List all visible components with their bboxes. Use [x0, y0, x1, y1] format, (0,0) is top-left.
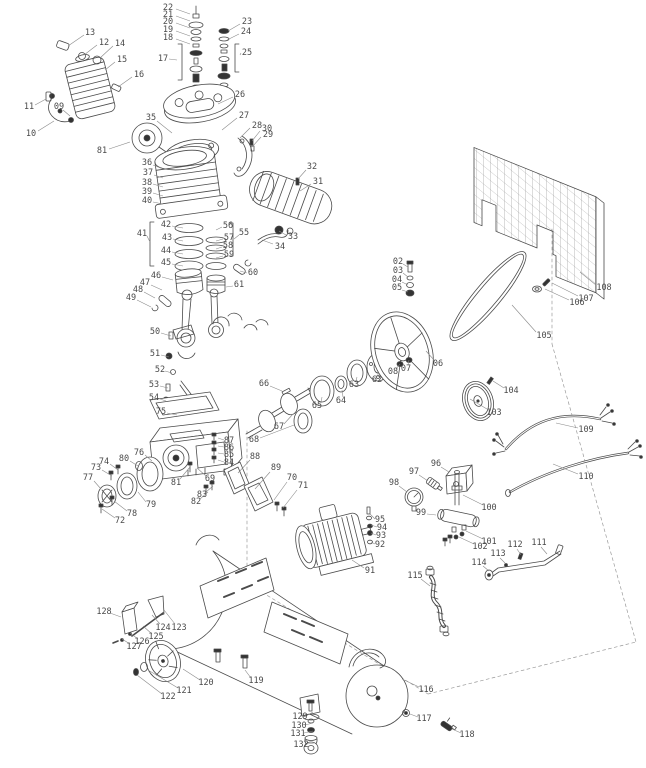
part-label-76: 76: [134, 449, 144, 458]
part-label-46: 46: [151, 272, 161, 281]
part-label-89: 89: [271, 464, 281, 473]
part-label-96: 96: [431, 460, 441, 469]
part-label-07: 07: [401, 365, 411, 374]
head-bracket: [234, 136, 254, 176]
part-label-120: 120: [198, 679, 213, 688]
part-label-71: 71: [298, 482, 308, 491]
part-label-88: 88: [250, 453, 260, 462]
connecting-rods: [177, 289, 268, 359]
part-label-111: 111: [531, 539, 546, 548]
parts-diagram: 2221201918172324252613121415161109108135…: [0, 0, 646, 768]
part-label-67: 67: [274, 423, 284, 432]
part-label-113: 113: [490, 550, 505, 559]
part-label-16: 16: [134, 71, 144, 80]
part-label-17: 17: [158, 55, 168, 64]
part-label-40: 40: [142, 197, 152, 206]
piston-2: [207, 275, 225, 294]
part-label-62: 62: [372, 376, 382, 385]
part-label-23: 23: [242, 18, 252, 27]
part-label-82: 82: [191, 498, 201, 507]
part-label-31: 31: [313, 178, 323, 187]
part-label-06: 06: [433, 360, 443, 369]
part-label-60: 60: [248, 269, 258, 278]
part-label-34: 34: [275, 243, 285, 252]
v-belt: [441, 244, 534, 348]
part-label-65: 65: [312, 402, 322, 411]
part-label-131: 131: [290, 730, 305, 739]
part-label-116: 116: [418, 686, 433, 695]
part-label-79: 79: [146, 501, 156, 510]
part-label-59: 59: [224, 251, 234, 260]
part-label-42: 42: [161, 221, 171, 230]
flywheel: [361, 304, 443, 401]
part-label-54: 54: [149, 394, 159, 403]
part-label-55: 55: [239, 229, 249, 238]
part-label-109: 109: [578, 426, 593, 435]
part-label-84: 84: [224, 459, 234, 468]
part-label-56: 56: [223, 222, 233, 231]
air-filter: [132, 123, 169, 154]
part-label-68: 68: [249, 436, 259, 445]
part-label-81: 81: [171, 479, 181, 488]
part-label-15: 15: [117, 56, 127, 65]
part-label-125: 125: [148, 633, 163, 642]
part-label-77: 77: [83, 474, 93, 483]
part-label-18: 18: [163, 34, 173, 43]
part-label-44: 44: [161, 247, 171, 256]
part-label-45: 45: [161, 259, 171, 268]
part-label-24: 24: [241, 28, 251, 37]
part-label-26: 26: [235, 91, 245, 100]
belt-guard: [474, 148, 604, 300]
cover-bolt: [296, 178, 299, 185]
part-label-25: 25: [242, 49, 252, 58]
part-label-80: 80: [119, 455, 129, 464]
part-label-98: 98: [389, 479, 399, 488]
part-label-41: 41: [137, 230, 147, 239]
part-label-103: 103: [486, 409, 501, 418]
part-label-53: 53: [149, 381, 159, 390]
part-label-10: 10: [26, 130, 36, 139]
part-label-66: 66: [259, 380, 269, 389]
part-label-107: 107: [578, 295, 593, 304]
wrist-pin-2: [232, 263, 246, 275]
part-label-122: 122: [160, 693, 175, 702]
tank-handle-left: [196, 535, 219, 545]
part-label-115: 115: [407, 572, 422, 581]
part-label-51: 51: [150, 350, 160, 359]
part-label-64: 64: [336, 397, 346, 406]
part-label-33: 33: [288, 233, 298, 242]
part-label-97: 97: [409, 468, 419, 477]
part-label-11: 11: [24, 103, 34, 112]
bracket-41: [150, 222, 154, 266]
part-label-08: 08: [388, 368, 398, 377]
part-label-49: 49: [126, 294, 136, 303]
part-label-05: 05: [392, 284, 402, 293]
part-label-100: 100: [481, 504, 496, 513]
part-label-110: 110: [578, 473, 593, 482]
piston-1: [175, 268, 204, 296]
part-label-32: 32: [307, 163, 317, 172]
guard-washer: [533, 286, 542, 292]
part-label-50: 50: [150, 328, 160, 337]
part-label-43: 43: [162, 234, 172, 243]
mount-plate-2: [264, 602, 348, 664]
power-cable-2: [506, 440, 643, 497]
pulley-bolt: [487, 377, 493, 384]
wrist-pin-1: [158, 294, 173, 308]
drain-plug: [403, 710, 410, 717]
part-label-61: 61: [234, 281, 244, 290]
part-label-37: 37: [143, 169, 153, 178]
part-label-117: 117: [416, 715, 431, 724]
part-label-13: 13: [85, 29, 95, 38]
power-cable-1: [493, 404, 616, 456]
safety-valve: [426, 477, 444, 492]
part-label-128: 128: [96, 608, 111, 617]
part-label-81: 81: [97, 147, 107, 156]
guard-bolt: [542, 278, 550, 286]
exploded-view-drawing: [0, 0, 646, 768]
part-label-36: 36: [142, 159, 152, 168]
elbow-fitting: [56, 40, 70, 51]
part-label-12: 12: [99, 39, 109, 48]
part-label-119: 119: [248, 677, 263, 686]
part-label-14: 14: [115, 40, 125, 49]
part-label-52: 52: [155, 366, 165, 375]
part-label-108: 108: [596, 284, 611, 293]
part-label-91: 91: [365, 567, 375, 576]
part-label-70: 70: [287, 474, 297, 483]
part-label-99: 99: [416, 509, 426, 518]
bracket-25: [235, 44, 239, 72]
part-label-28: 28: [252, 122, 262, 131]
part-label-132: 132: [293, 741, 308, 750]
part-label-112: 112: [507, 541, 522, 550]
part-label-35: 35: [146, 114, 156, 123]
part-label-127: 127: [126, 643, 141, 652]
part-label-92: 92: [375, 541, 385, 550]
part-label-118: 118: [459, 731, 474, 740]
part-label-78: 78: [127, 510, 137, 519]
part-label-121: 121: [176, 687, 191, 696]
braided-hose: [426, 566, 449, 636]
part-label-105: 105: [536, 332, 551, 341]
part-label-114: 114: [471, 559, 486, 568]
part-label-123: 123: [171, 624, 186, 633]
part-label-29: 29: [263, 131, 273, 140]
part-label-09: 09: [54, 103, 64, 112]
part-label-27: 27: [239, 112, 249, 121]
part-label-104: 104: [503, 387, 518, 396]
bracket-17: [178, 44, 182, 80]
valve-stack: [178, 6, 239, 95]
part-label-102: 102: [472, 543, 487, 552]
part-label-72: 72: [115, 517, 125, 526]
part-label-69: 69: [205, 475, 215, 484]
part-label-73: 73: [91, 464, 101, 473]
part-label-75: 75: [156, 408, 166, 417]
part-label-63: 63: [349, 381, 359, 390]
